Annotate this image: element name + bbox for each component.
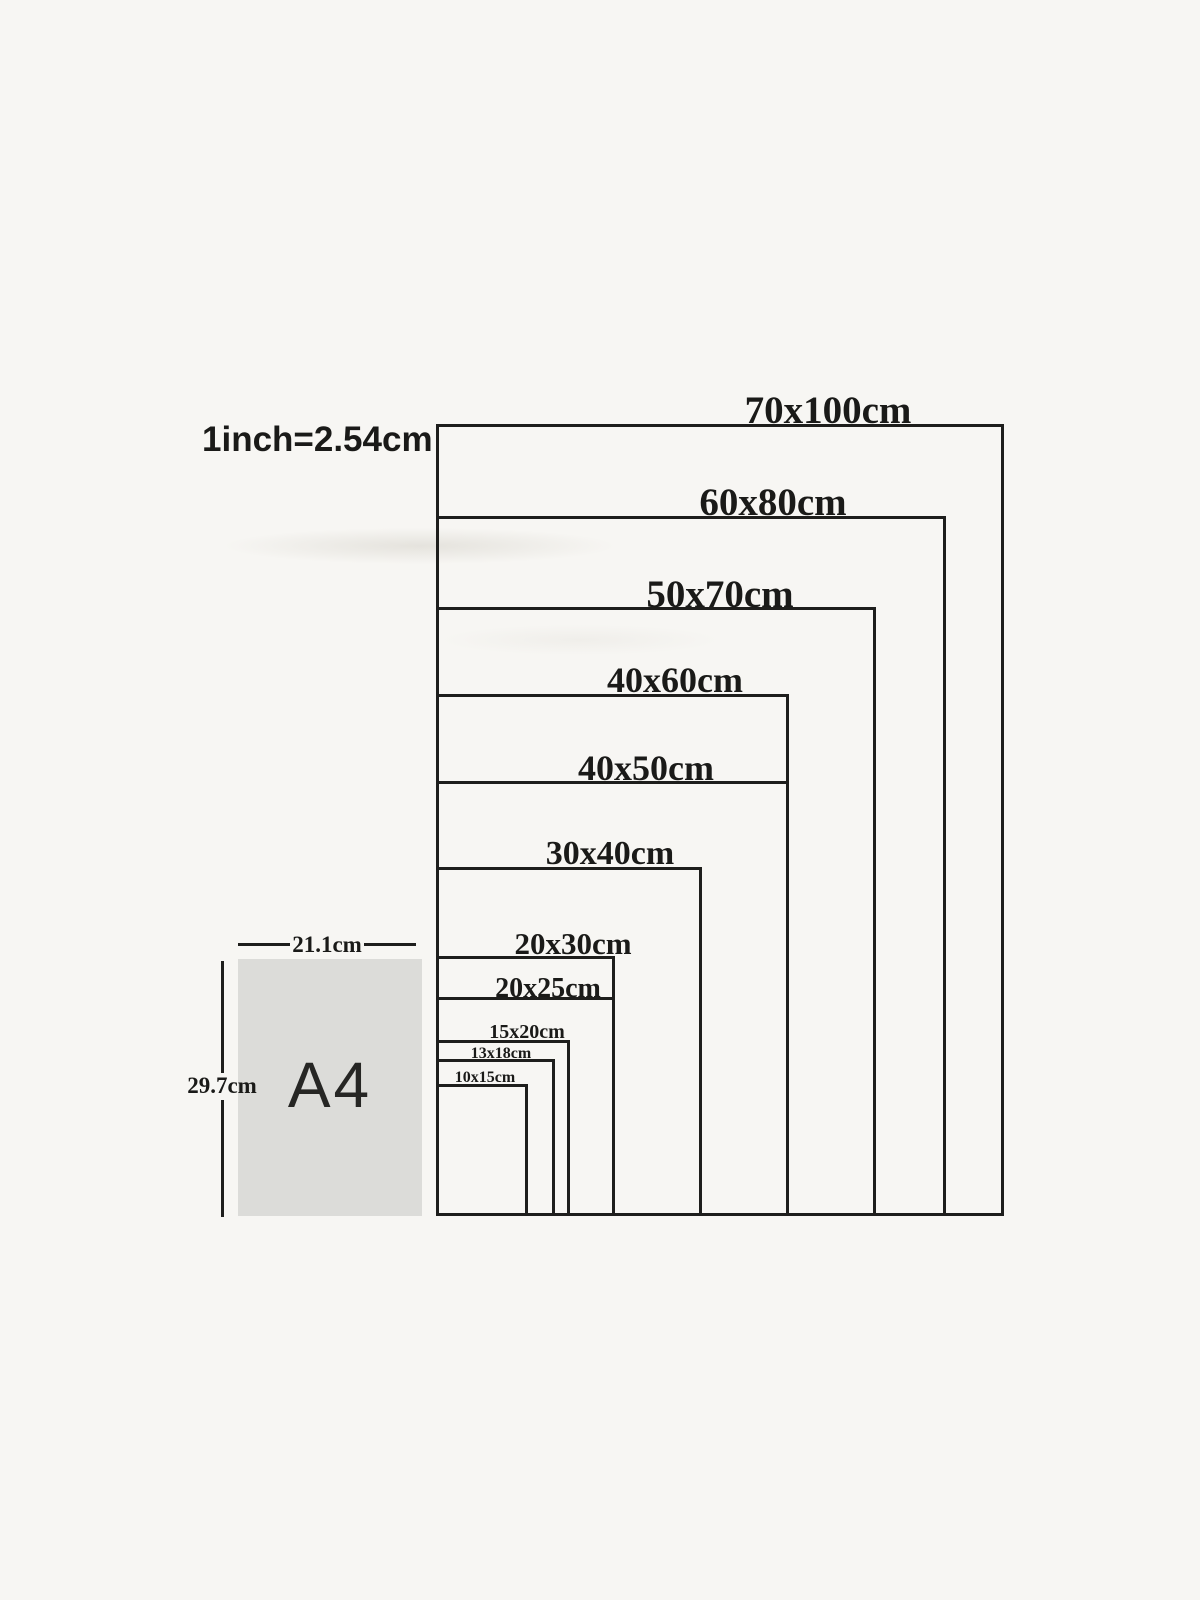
- a4-height-value: 29.7cm: [187, 1074, 257, 1097]
- size-label-10x15cm: 10x15cm: [455, 1070, 515, 1086]
- size-label-15x20cm: 15x20cm: [489, 1022, 565, 1042]
- size-rect-10x15cm: [436, 1084, 528, 1216]
- size-label-13x18cm: 13x18cm: [471, 1046, 531, 1062]
- size-label-30x40cm: 30x40cm: [546, 837, 674, 871]
- size-label-60x80cm: 60x80cm: [699, 483, 846, 522]
- a4-height-dim-line-top: [221, 961, 224, 1073]
- size-label-20x25cm: 20x25cm: [495, 975, 601, 1003]
- size-chart-canvas: 1inch=2.54cm 70x100cm 60x80cm 50x70cm 40…: [0, 0, 1200, 1600]
- a4-width-dim-line-left: [238, 943, 290, 946]
- a4-label: A4: [288, 1053, 372, 1117]
- a4-width-value: 21.1cm: [290, 933, 364, 956]
- a4-width-dimension: 21.1cm: [238, 931, 416, 957]
- size-label-40x60cm: 40x60cm: [607, 662, 743, 698]
- size-label-70x100cm: 70x100cm: [745, 391, 912, 430]
- size-label-50x70cm: 50x70cm: [646, 575, 793, 614]
- a4-width-dim-line-right: [364, 943, 416, 946]
- a4-paper-sheet: A4: [238, 959, 422, 1216]
- a4-height-dim-line-bottom: [221, 1100, 224, 1217]
- conversion-note: 1inch=2.54cm: [202, 422, 433, 457]
- size-label-40x50cm: 40x50cm: [578, 750, 714, 786]
- size-label-20x30cm: 20x30cm: [514, 928, 631, 959]
